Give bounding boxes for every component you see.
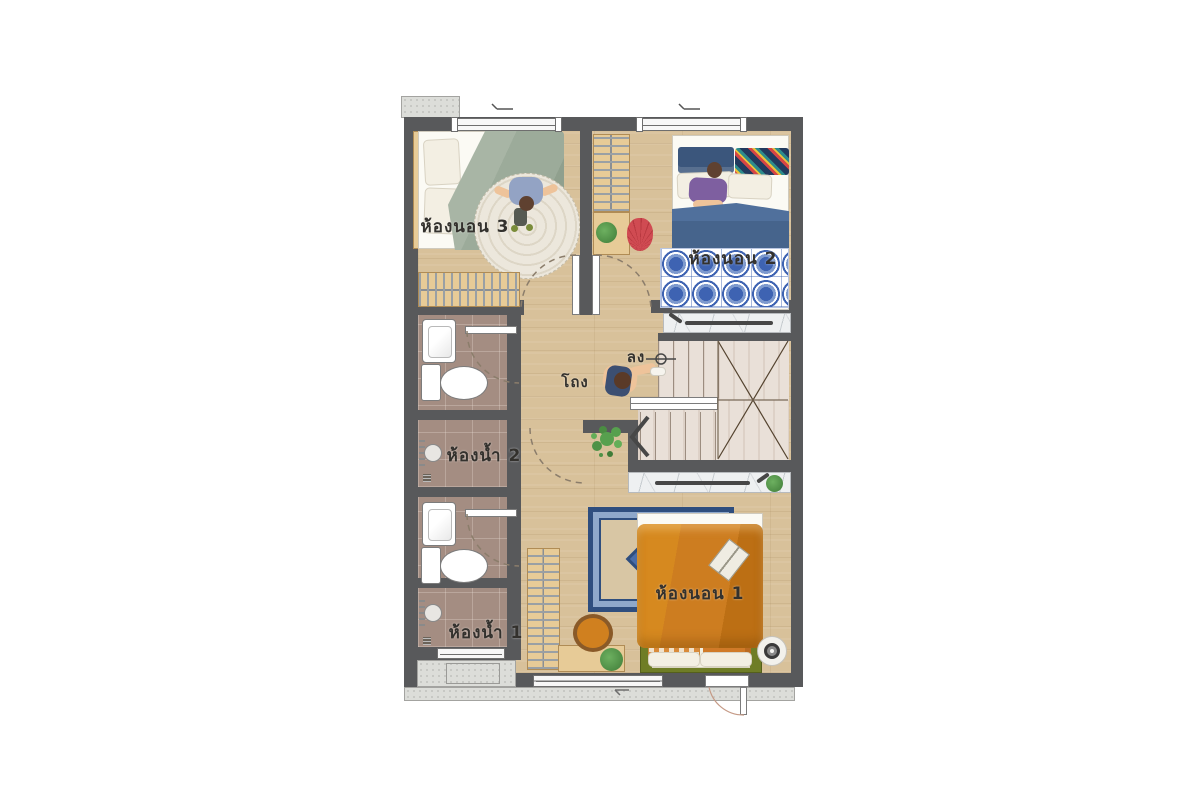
bed3-door-leaf — [572, 255, 580, 315]
bathroom2-shower-pipe — [419, 440, 425, 466]
stair-entry-rail — [630, 397, 718, 410]
bedroom1-sliding-window — [533, 675, 663, 687]
hall-label: โถง — [545, 370, 605, 394]
bedroom3-window — [455, 118, 558, 131]
bed2-door-leaf — [592, 255, 600, 315]
bed3-pillow-1 — [423, 138, 461, 186]
bathroom1-label: ห้องน้ำ 1 — [436, 619, 536, 646]
bathroom2-toilet-tank — [421, 364, 441, 401]
bedroom1-label: ห้องนอน 1 — [645, 580, 755, 607]
person-bedroom2-head — [707, 162, 722, 178]
hall-monstera-plant — [600, 432, 614, 446]
bed1-pillow-white-left — [648, 652, 700, 667]
bathroom2-label: ห้องน้ำ 2 — [434, 442, 534, 469]
person-bedroom3-shoe-right — [526, 224, 533, 231]
balcony-inset-detail — [446, 663, 500, 684]
wall-stair-top — [658, 333, 803, 341]
bathroom2-floor-drain — [423, 474, 431, 482]
bed2-pillow-2 — [728, 173, 773, 200]
bathroom1-window — [437, 648, 505, 659]
wall-stair-bottom — [628, 460, 803, 472]
bathroom2-toilet-bowl — [440, 366, 488, 400]
bathroom1-floor-drain — [423, 637, 431, 645]
bathroom2-shower-partition — [418, 410, 507, 420]
bedroom2-window — [640, 118, 743, 131]
console-bottom-bar — [655, 481, 750, 485]
bathroom1-door-leaf — [465, 509, 517, 517]
bed1-fan-hub — [770, 649, 774, 653]
bathroom1-toilet-tank — [421, 547, 441, 584]
bed1-wardrobe — [527, 548, 560, 670]
bathroom1-sink-basin — [428, 509, 452, 541]
balcony-strip-bottom — [404, 687, 795, 701]
bed2-folded-blanket — [678, 147, 734, 173]
floor-plan-canvas: ห้องนอน 3 ห้องนอน 2 ห้องนอน 1 ห้องน้ำ 2 … — [0, 0, 1200, 800]
bed1-fan — [757, 636, 787, 666]
stair-treads-upper — [658, 341, 720, 398]
bedroom3-window-jamb-right — [555, 117, 562, 132]
bathroom1-shower-pipe — [419, 600, 425, 626]
wall-bed3-closet — [580, 131, 592, 315]
window2-handle-icon — [679, 104, 700, 109]
balcony-door-threshold — [705, 675, 749, 687]
bedroom2-window-jamb-left — [636, 117, 643, 132]
ac-ledge-top-left — [401, 96, 460, 118]
bed3-wardrobe — [418, 272, 520, 307]
bedroom3-window-jamb-left — [451, 117, 458, 132]
bathroom1-toilet-bowl — [440, 549, 488, 583]
stair-treads-lower — [640, 412, 718, 460]
window1-handle-icon — [492, 104, 513, 109]
bed1-desk-plant — [600, 648, 623, 671]
wall-between-bathrooms — [404, 487, 521, 497]
bed2-wardrobe — [593, 134, 630, 212]
bed2-aztec-pillow — [735, 148, 789, 175]
stairs-down-label: ลง — [618, 345, 654, 369]
bed2-desk-plant — [596, 222, 617, 243]
balcony-door-leaf — [740, 687, 747, 715]
bathroom2-sink-basin — [428, 326, 452, 358]
bed2-chair — [627, 218, 653, 251]
bedroom3-label: ห้องนอน 3 — [410, 213, 520, 240]
bedroom2-label: ห้องนอน 2 — [678, 245, 788, 272]
bathroom2-door-leaf — [465, 326, 517, 334]
console-top-bar — [685, 321, 773, 325]
person-bedroom3-head — [519, 196, 534, 211]
bedroom2-window-jamb-right — [740, 117, 747, 132]
bed1-fan-ring — [764, 643, 780, 659]
console-plant — [766, 475, 783, 492]
bed1-pillow-white-right — [700, 652, 752, 667]
person-hall-head — [614, 372, 631, 389]
bed1-chair — [573, 614, 613, 652]
